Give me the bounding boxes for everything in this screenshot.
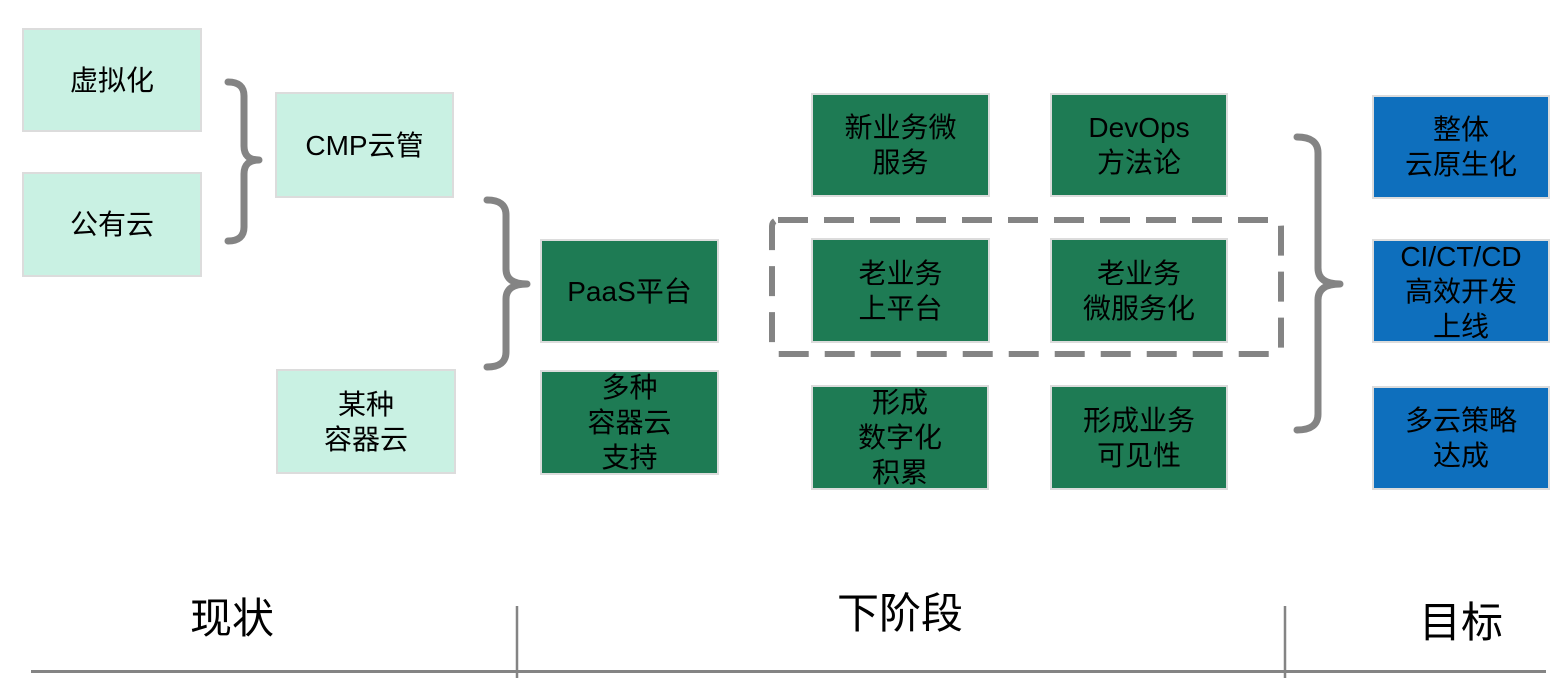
box-overall-cloud-native: 整体 云原生化	[1372, 95, 1550, 199]
brace-cmp-to-paas	[487, 200, 527, 367]
box-multicloud-strategy-achieved: 多云策略 达成	[1372, 386, 1550, 490]
box-multi-container-cloud-support: 多种 容器云 支持	[540, 370, 719, 475]
box-cmp-cloud-management: CMP云管	[275, 92, 454, 198]
roadmap-diagram: 虚拟化 公有云 CMP云管 某种 容器云 PaaS平台 多种 容器云 支持 新业…	[0, 0, 1558, 678]
stage-label-goal: 目标	[1391, 600, 1531, 648]
box-old-business-onto-platform: 老业务 上平台	[811, 238, 990, 343]
brace-next-to-goal	[1297, 137, 1340, 430]
brace-current-to-cmp	[228, 82, 259, 241]
box-old-business-microservitization: 老业务 微服务化	[1050, 238, 1228, 343]
box-paas-platform: PaaS平台	[540, 239, 719, 343]
stage-label-current: 现状	[162, 596, 302, 644]
box-virtualization: 虚拟化	[22, 28, 202, 132]
box-business-visibility: 形成业务 可见性	[1050, 385, 1228, 490]
box-ci-ct-cd-efficient-release: CI/CT/CD 高效开发 上线	[1372, 239, 1550, 343]
box-new-business-microservices: 新业务微 服务	[811, 93, 990, 197]
connector-layer	[0, 0, 1558, 678]
box-digital-accumulation: 形成 数字化 积累	[811, 385, 989, 490]
box-some-container-cloud: 某种 容器云	[276, 369, 456, 474]
box-devops-methodology: DevOps 方法论	[1050, 93, 1228, 197]
box-public-cloud: 公有云	[22, 172, 202, 277]
stage-label-next: 下阶段	[820, 591, 980, 639]
